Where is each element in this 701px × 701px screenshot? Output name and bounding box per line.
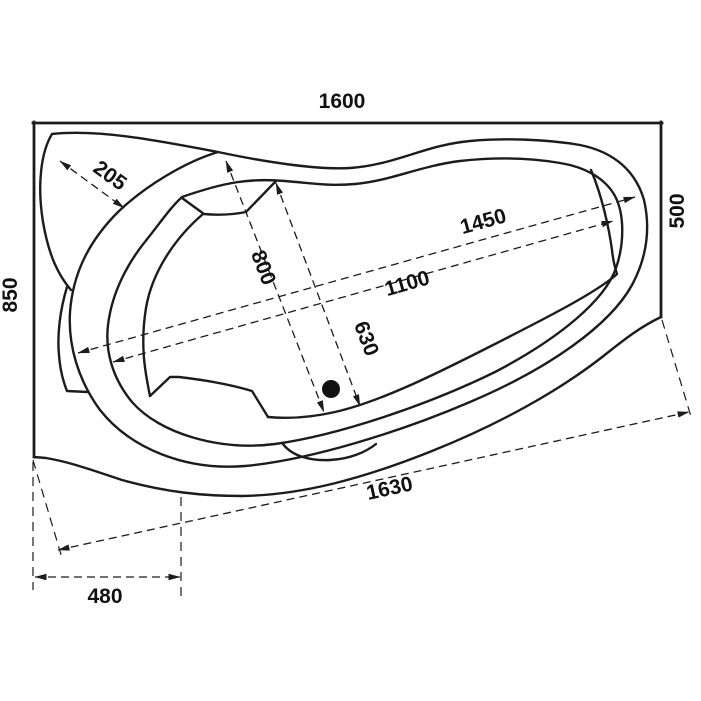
dim-label-1630: 1630 xyxy=(364,472,415,504)
backrest-lens xyxy=(591,170,617,274)
ext-line-diagonal-left xyxy=(33,460,62,558)
apron-outline xyxy=(34,317,661,496)
tub-body xyxy=(34,133,661,496)
extension-lines xyxy=(33,320,692,600)
dim-label-1600: 1600 xyxy=(319,90,366,113)
dim-label-1450: 1450 xyxy=(458,204,509,239)
basin-left-wall xyxy=(143,214,203,396)
ext-line-diagonal-right xyxy=(662,320,692,420)
dim-line-630 xyxy=(276,183,360,406)
wall-outline xyxy=(33,122,662,457)
dim-line-800 xyxy=(226,161,324,412)
dim-label-630: 630 xyxy=(349,318,383,359)
drain-dot xyxy=(322,380,340,398)
headrest-notch xyxy=(182,181,276,215)
drawing-canvas: 1600 850 500 205 800 630 1450 1100 1630 … xyxy=(0,0,701,701)
dimension-lines xyxy=(35,161,689,577)
dim-label-1100: 1100 xyxy=(382,266,432,301)
rim-outer-outline xyxy=(70,139,647,466)
dim-label-480: 480 xyxy=(87,585,122,608)
dim-label-205: 205 xyxy=(89,156,131,195)
seat-notch xyxy=(150,377,268,417)
dim-label-500: 500 xyxy=(666,193,689,228)
bathtub-technical-drawing: 1600 850 500 205 800 630 1450 1100 1630 … xyxy=(0,0,701,701)
left-flange xyxy=(58,287,88,392)
dim-label-800: 800 xyxy=(246,247,280,288)
dim-label-850: 850 xyxy=(0,277,22,312)
